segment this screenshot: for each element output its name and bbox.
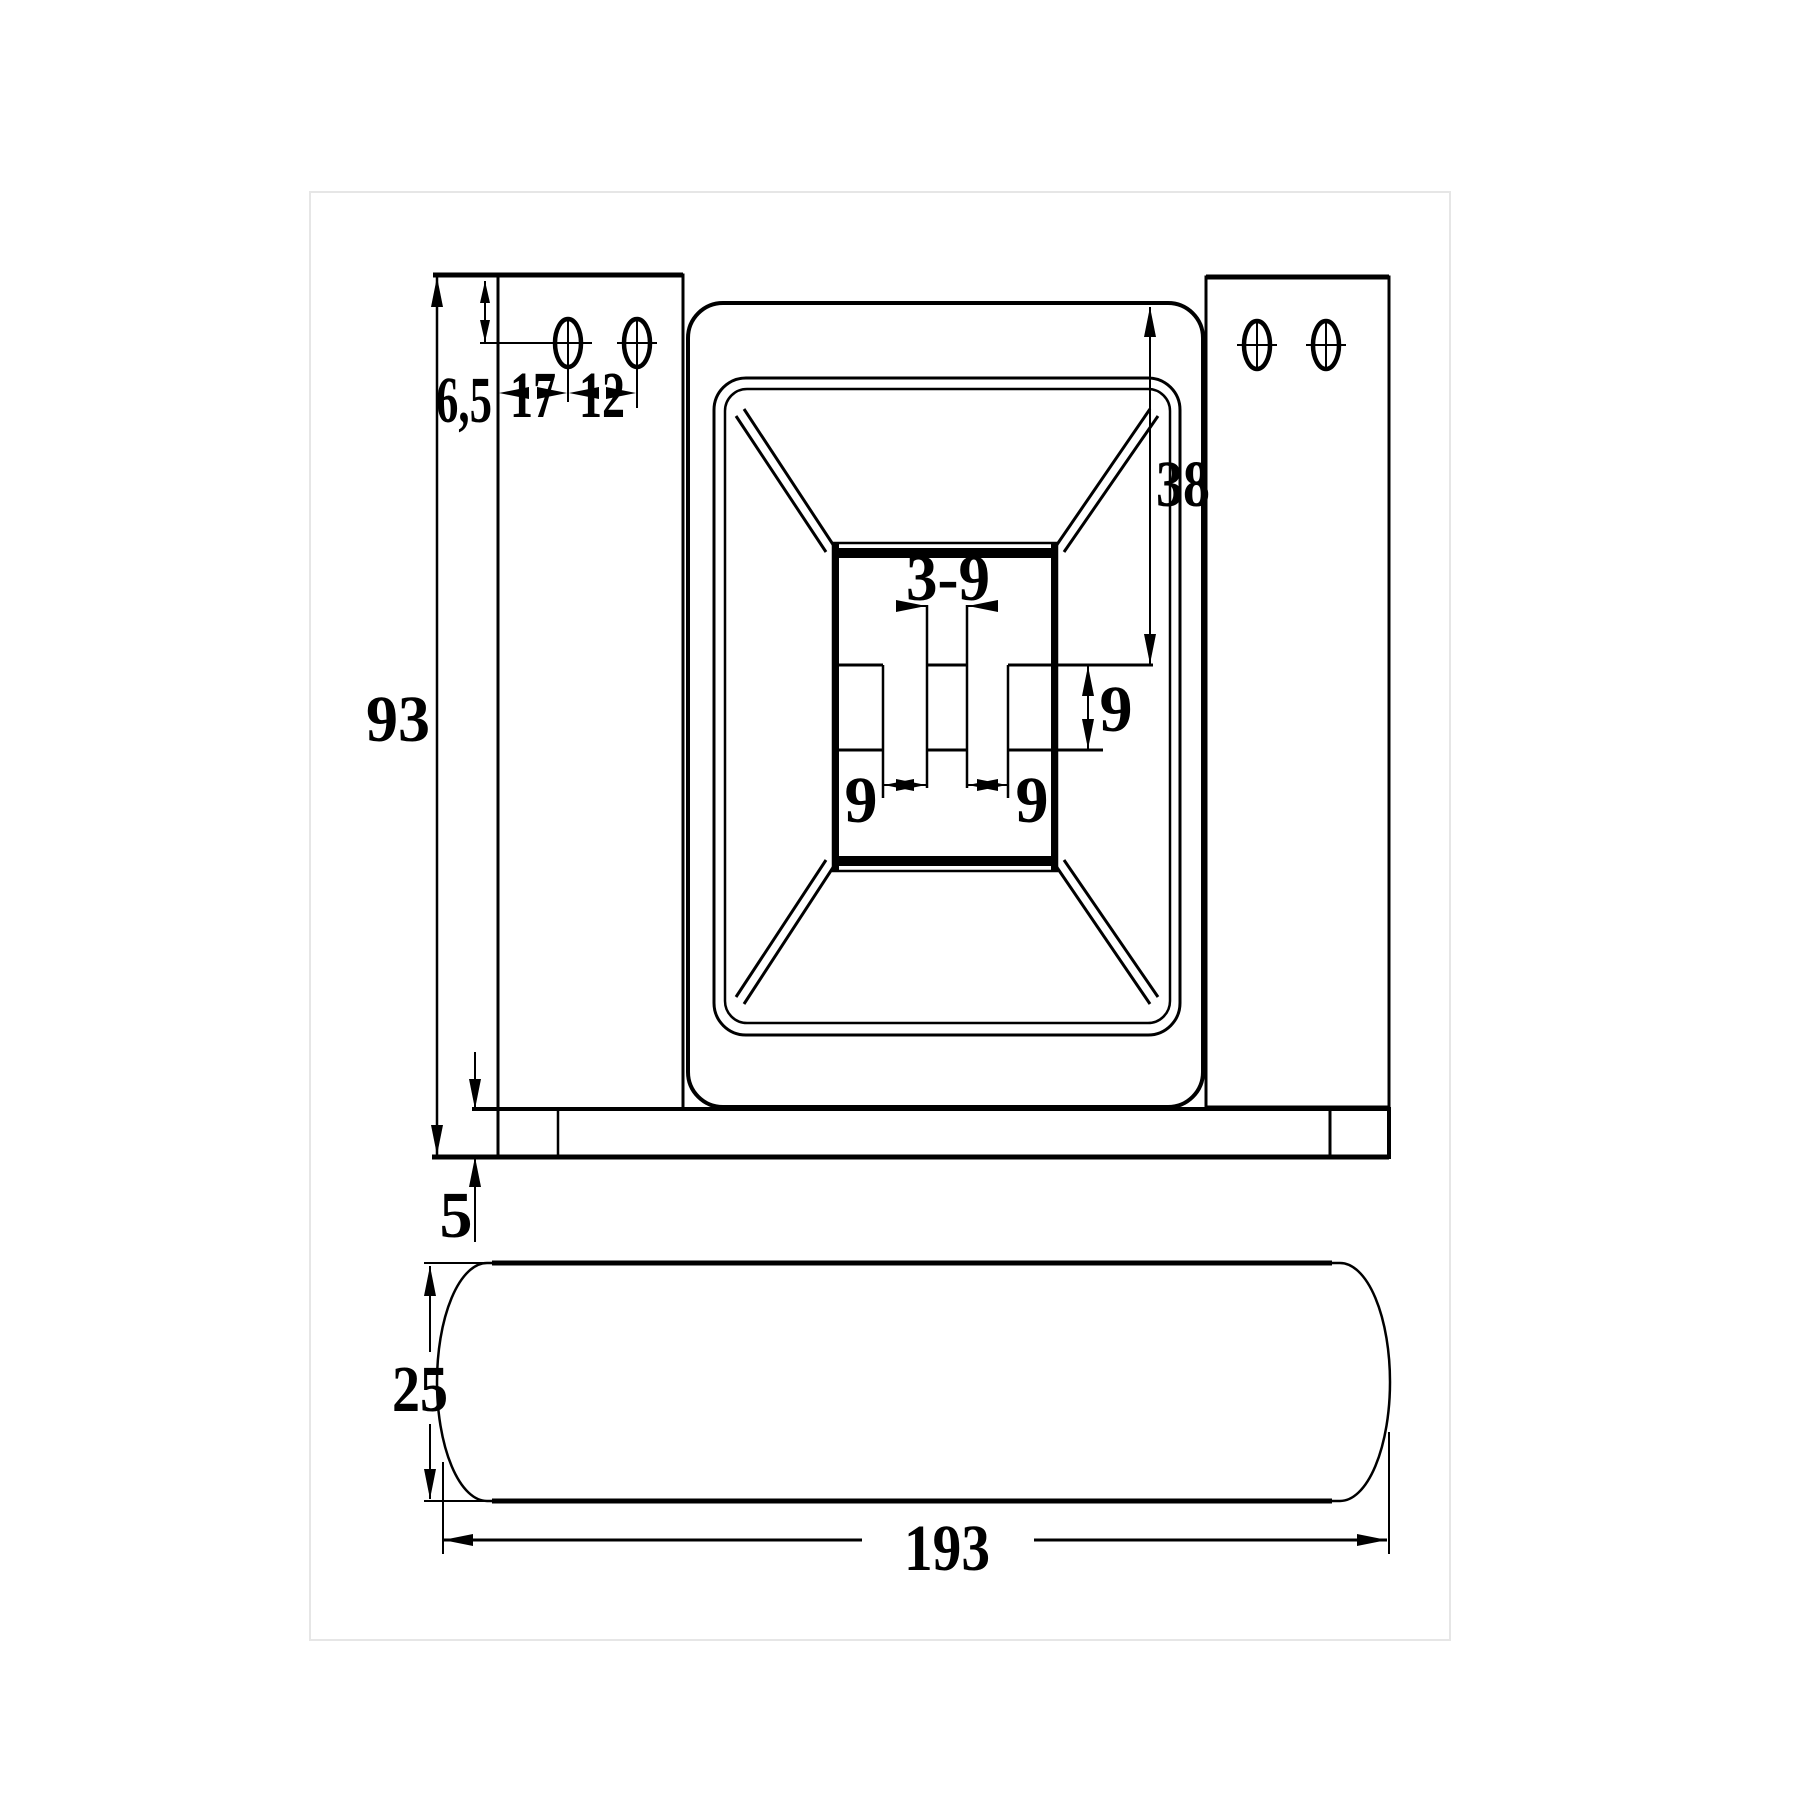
arrowhead-left-icon — [443, 1534, 473, 1546]
dim-label-9-right: 9 — [1016, 764, 1049, 837]
dim-label-9-band: 9 — [1100, 673, 1133, 746]
arrowhead-up-icon — [431, 277, 443, 307]
drawing-sheet: 93 6,5 17 12 38 — [0, 0, 1800, 1800]
arrowhead-up-icon — [424, 1266, 436, 1296]
arrowhead-down-icon — [1082, 719, 1094, 749]
side-view: 25 193 — [392, 1263, 1390, 1585]
dim-base-thickness: 5 — [440, 1052, 482, 1252]
dim-recess-depth: 38 — [1144, 307, 1210, 664]
arrowhead-down-icon — [469, 1079, 481, 1109]
arrowhead-up-icon — [1082, 666, 1094, 696]
arrowhead-up-icon — [480, 281, 490, 303]
floor-right-rail — [1051, 543, 1057, 871]
dim-overall-length: 193 — [443, 1432, 1389, 1585]
dim-label-25: 25 — [392, 1353, 448, 1426]
recess-chamfer-edges — [736, 409, 1158, 1004]
dim-hole-pitch: 12 — [569, 359, 636, 432]
dim-label-6-5: 6,5 — [436, 364, 492, 437]
dim-hole-top-offset: 6,5 — [436, 281, 492, 437]
dim-label-5: 5 — [440, 1179, 473, 1252]
technical-drawing-canvas: 93 6,5 17 12 38 — [0, 0, 1800, 1800]
dim-label-38: 38 — [1156, 448, 1210, 521]
dim-label-9-left: 9 — [845, 764, 878, 837]
arrowhead-right-icon — [1357, 1534, 1387, 1546]
dim-label-193: 193 — [904, 1512, 990, 1585]
side-profile-outline — [437, 1263, 1390, 1501]
arrowhead-up-icon — [1144, 307, 1156, 337]
arrowhead-down-icon — [431, 1125, 443, 1155]
dim-label-3-9: 3-9 — [906, 542, 990, 615]
dim-label-17: 17 — [510, 359, 556, 432]
dim-slot-gap-left: 9 — [845, 764, 927, 837]
dim-overall-height: 93 — [366, 277, 443, 1155]
floor-left-rail — [833, 543, 839, 871]
dim-label-93: 93 — [366, 683, 430, 756]
arrowhead-down-icon — [480, 320, 490, 342]
dim-band-height: 9 — [1082, 666, 1133, 749]
dim-hole-edge-offset: 17 — [499, 359, 567, 432]
front-view: 93 6,5 17 12 38 — [366, 275, 1389, 1252]
dim-profile-height: 25 — [392, 1266, 448, 1499]
right-plate-outline — [1206, 277, 1389, 1107]
base-plate — [432, 1109, 1389, 1157]
floor-bottom-rail — [833, 856, 1057, 866]
right-mounting-plate — [1206, 277, 1389, 1159]
arrowhead-down-icon — [424, 1469, 436, 1499]
dim-center-slot: 3-9 — [896, 542, 998, 615]
dim-label-12: 12 — [579, 359, 625, 432]
arrowhead-down-icon — [1144, 634, 1156, 664]
